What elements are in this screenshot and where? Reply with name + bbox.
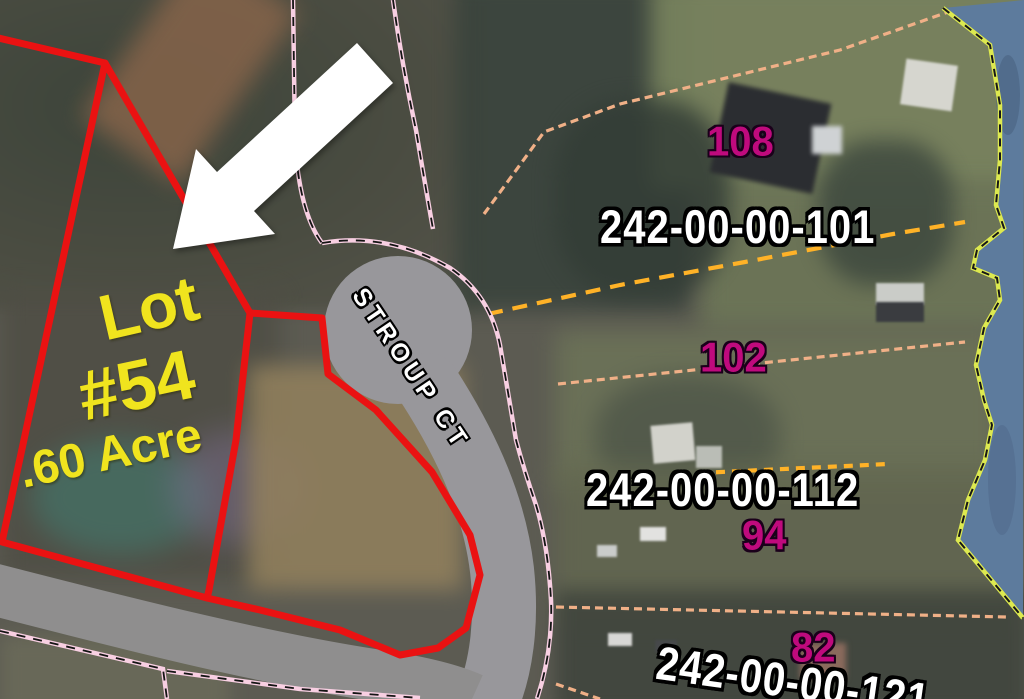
parcel-line-101-north [484,12,948,214]
parcel-line-bottom [556,684,600,699]
parcel-line-south [556,607,1007,617]
boundary-dashed-101 [488,222,965,314]
parcel-line-102-south [558,342,965,384]
highlight-arrow-icon [173,43,393,249]
parcel-map: Lot #54 .60 Acre STROUP CT 108 242-00-00… [0,0,1024,699]
map-overlay [0,0,1024,699]
water-shade-2 [988,425,1016,535]
boundary-dashed-112 [700,464,888,473]
stroup-ct-pavement [428,385,504,699]
lot-54-boundary [2,63,250,598]
north-parcel-boundary-line [0,36,105,63]
